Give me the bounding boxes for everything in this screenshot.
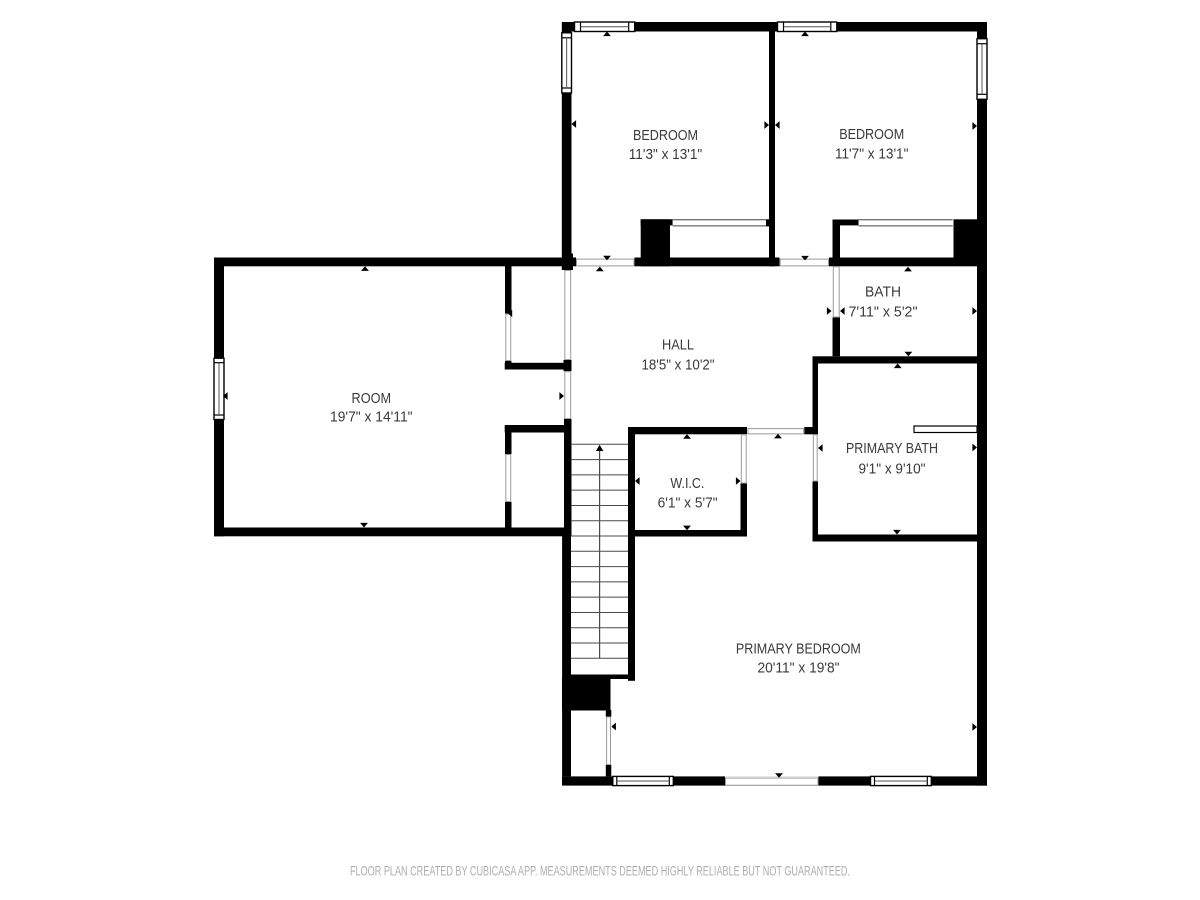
svg-text:20'11" x 19'8": 20'11" x 19'8": [758, 660, 840, 676]
svg-text:PRIMARY BATH: PRIMARY BATH: [846, 441, 938, 457]
svg-text:BEDROOM: BEDROOM: [633, 128, 698, 144]
svg-text:ROOM: ROOM: [352, 391, 392, 407]
svg-text:BATH: BATH: [865, 285, 901, 301]
svg-text:9'1" x 9'10": 9'1" x 9'10": [859, 462, 926, 478]
svg-text:6'1" x 5'7": 6'1" x 5'7": [658, 496, 718, 512]
svg-text:BEDROOM: BEDROOM: [839, 127, 904, 143]
svg-text:7'11" x 5'2": 7'11" x 5'2": [849, 304, 918, 320]
svg-text:11'3" x 13'1": 11'3" x 13'1": [629, 147, 703, 163]
svg-text:FLOOR PLAN CREATED BY CUBICASA: FLOOR PLAN CREATED BY CUBICASA APP. MEAS…: [350, 863, 850, 879]
svg-text:18'5" x 10'2": 18'5" x 10'2": [642, 357, 715, 373]
svg-text:19'7" x 14'11": 19'7" x 14'11": [330, 410, 413, 426]
svg-text:HALL: HALL: [662, 338, 694, 354]
svg-text:PRIMARY BEDROOM: PRIMARY BEDROOM: [736, 641, 861, 657]
svg-text:W.I.C.: W.I.C.: [670, 476, 704, 492]
svg-text:11'7" x 13'1": 11'7" x 13'1": [835, 147, 909, 163]
